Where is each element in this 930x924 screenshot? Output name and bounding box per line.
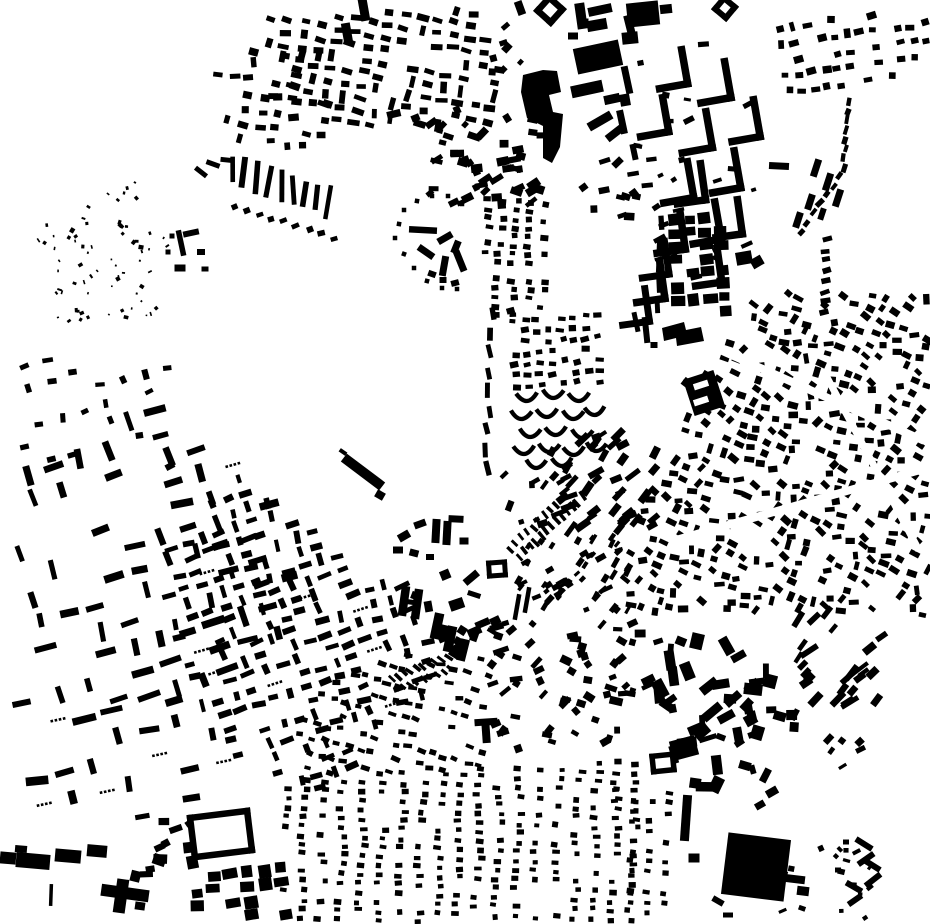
city-figure-ground-map — [0, 0, 930, 924]
map-canvas — [0, 0, 930, 924]
